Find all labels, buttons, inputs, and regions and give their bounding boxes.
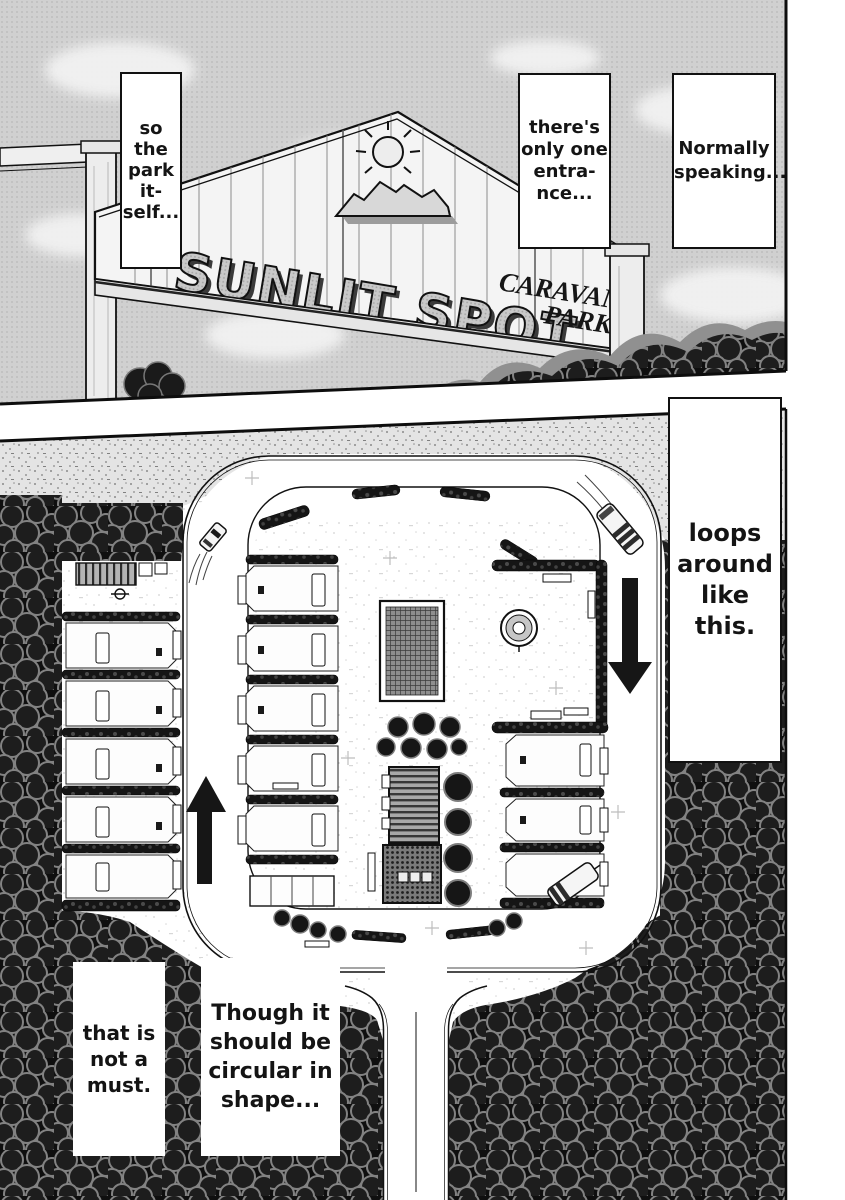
- building-striped: [382, 767, 439, 843]
- caption-though-it-should-be-circular: Though it should be circular in shape...: [201, 958, 340, 1156]
- caption-line: park: [122, 160, 180, 181]
- caption-line: Normally: [674, 137, 774, 161]
- caption-line: self...: [122, 202, 180, 223]
- caption-so-the-park-itself: so the park it- self...: [120, 72, 182, 269]
- caption-line: like: [670, 580, 780, 611]
- caption-line: must.: [73, 1072, 165, 1098]
- caption-line: speaking...: [674, 161, 774, 185]
- caption-that-is-not-a-must: that is not a must.: [73, 962, 165, 1156]
- building-main: [380, 601, 444, 701]
- amenity-block: [250, 876, 334, 906]
- caption-line: only one: [520, 139, 609, 161]
- caption-line: shape...: [201, 1086, 340, 1115]
- caption-line: that is: [73, 1020, 165, 1046]
- caption-normally-speaking: Normally speaking...: [672, 73, 776, 249]
- left-pitches: [66, 623, 181, 898]
- caption-line: nce...: [520, 183, 609, 205]
- caption-line: it-: [122, 181, 180, 202]
- caption-line: loops: [670, 518, 780, 549]
- caption-line: around: [670, 549, 780, 580]
- caption-theres-only-one-entrance: there's only one entra- nce...: [518, 73, 611, 249]
- caption-line: not a: [73, 1046, 165, 1072]
- caption-line: this.: [670, 611, 780, 642]
- left-pitch-column: [62, 563, 181, 911]
- manga-page: SUNLIT SPOT SUNLIT SPOT CARAVAN PARK: [0, 0, 845, 1200]
- caption-line: circular in: [201, 1057, 340, 1086]
- caption-line: the: [122, 139, 180, 160]
- bench: [305, 941, 329, 947]
- caption-loops-around-like-this: loops around like this.: [668, 397, 782, 763]
- caption-line: entra-: [520, 161, 609, 183]
- caption-line: should be: [201, 1028, 340, 1057]
- bench: [273, 783, 298, 789]
- caption-line: so: [122, 118, 180, 139]
- caption-line: there's: [520, 117, 609, 139]
- caption-line: Though it: [201, 999, 340, 1028]
